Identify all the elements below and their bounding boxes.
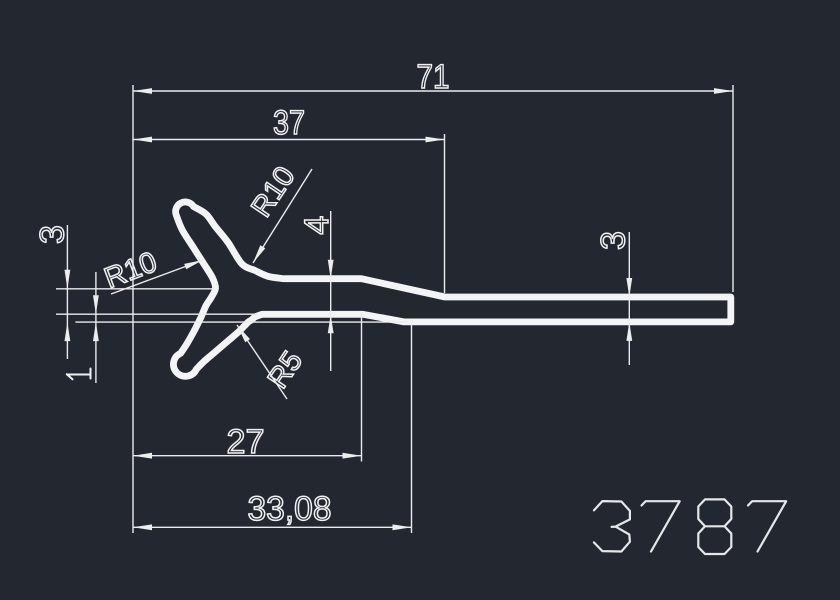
svg-text:33,08: 33,08 — [248, 490, 332, 528]
svg-text:71: 71 — [417, 58, 450, 96]
svg-text:3: 3 — [595, 231, 633, 250]
svg-text:27: 27 — [227, 423, 265, 461]
svg-text:3: 3 — [34, 225, 72, 244]
svg-text:37: 37 — [273, 104, 305, 142]
svg-text:4: 4 — [298, 216, 336, 235]
